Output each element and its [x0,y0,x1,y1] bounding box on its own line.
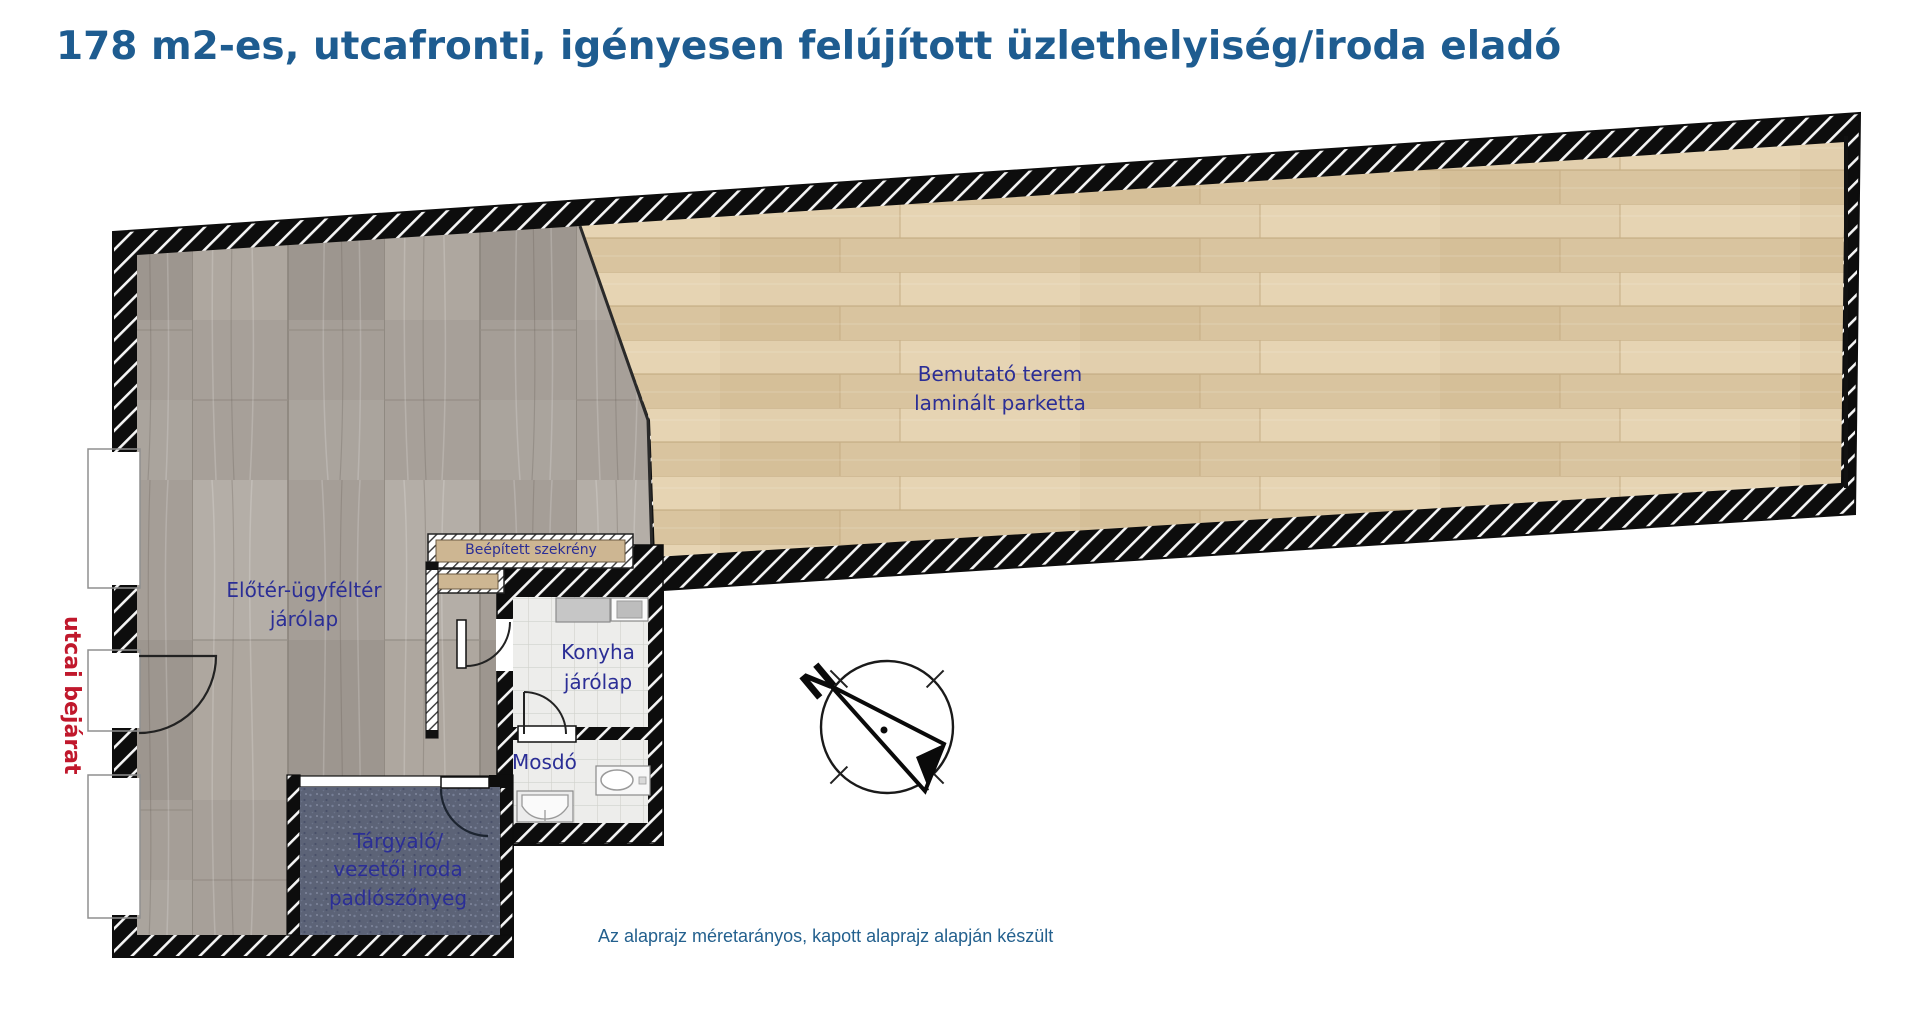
label-built-in-cabinet: Beépített szekrény [440,543,622,558]
north-compass-icon: N [792,655,953,793]
kitchen-name: Konyha [520,637,676,667]
page-title: 178 m2-es, utcafronti, igényesen felújít… [56,24,1561,69]
meeting-room-name2: vezetői iroda [298,855,498,883]
kitchen-counter [556,598,610,622]
label-meeting-room: Tárgyaló/ vezetői iroda padlószőnyeg [298,827,498,912]
compass-north-label: N [792,655,845,709]
floor-plan-page: N 178 m2-es, utcafronti, igényesen felúj… [0,0,1920,1010]
label-kitchen: Konyha járólap [520,637,676,697]
label-washroom: Mosdó [512,748,622,777]
showroom-name: Bemutató terem [850,360,1150,389]
showroom-floor-type: laminált parketta [850,389,1150,418]
foyer-floor-type: járólap [182,605,426,634]
meeting-room-name: Tárgyaló/ [298,827,498,855]
kitchen-floor-type: járólap [520,667,676,697]
foyer-name: Előtér-ügyféltér [182,576,426,605]
label-foyer: Előtér-ügyféltér járólap [182,576,426,634]
label-showroom: Bemutató terem laminált parketta [850,360,1150,418]
scale-note: Az alaprajz méretarányos, kapott alapraj… [598,926,1053,947]
sink-icon [517,791,573,822]
meeting-room-floor-type: padlószőnyeg [298,884,498,912]
partition-wall [426,562,438,738]
label-street-entrance: utcai bejárat [59,616,84,775]
floor-plan-drawing: N [0,0,1920,1010]
